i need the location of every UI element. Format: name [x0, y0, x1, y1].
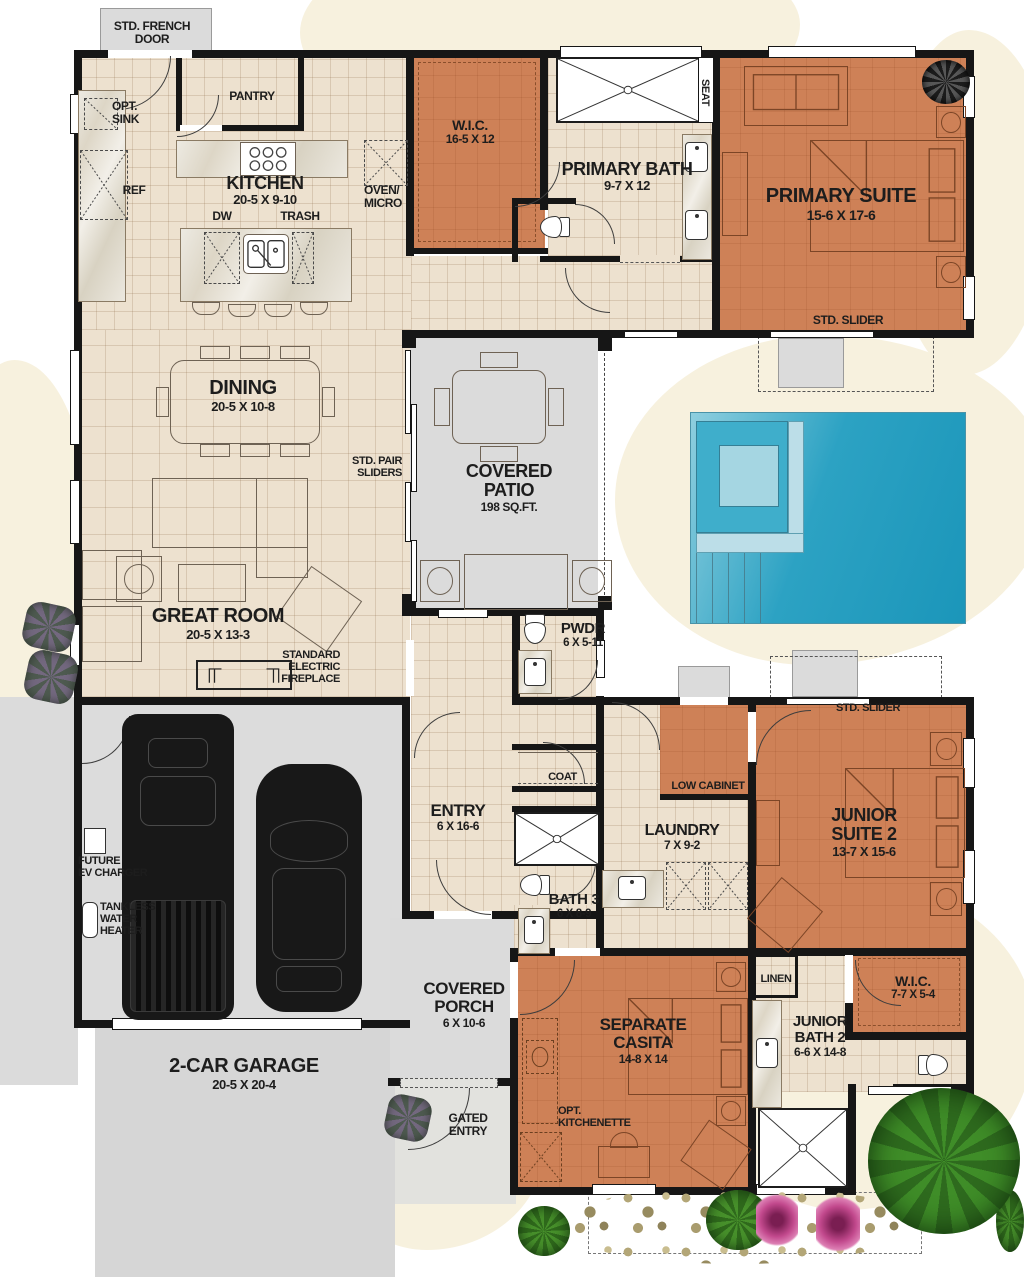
ev-charger-label: FUTURE EV CHARGER [78, 856, 170, 880]
window [438, 609, 488, 618]
slider-panel [411, 540, 417, 602]
wall-segment [660, 794, 756, 800]
wall-segment [406, 248, 548, 254]
sink [756, 1038, 778, 1068]
nightstand [716, 1096, 746, 1126]
toilet [918, 1054, 948, 1076]
linen-label: LINEN [754, 974, 798, 986]
pool [690, 412, 966, 624]
junior-door-opening [748, 712, 756, 762]
laundry-label: LAUNDRY7 X 9-2 [628, 822, 736, 852]
low-cabinet-label: LOW CABINET [663, 781, 753, 793]
ref-label: REF [112, 184, 156, 197]
wall-segment [845, 1032, 974, 1040]
wall-segment [402, 330, 416, 348]
trash-label: TRASH [272, 210, 328, 223]
primary-shower [556, 57, 700, 123]
patio-end-table [420, 560, 460, 602]
dining-chair [280, 346, 310, 359]
covered-patio-label: COVERED PATIO198 SQ.FT. [448, 462, 570, 514]
kitchen-label: KITCHEN20-5 X 9-10 [195, 174, 335, 207]
dining-label: DINING20-5 X 10-8 [170, 378, 316, 414]
casita-door-opening [510, 962, 518, 1018]
bath3-label: BATH 36 X 8-9 [536, 892, 612, 921]
slider-panel [405, 482, 411, 542]
tankless-label: TANKLESS WATER HEATER [100, 902, 172, 938]
patio-chair [434, 388, 450, 426]
primary-bath-label: PRIMARY BATH9-7 X 12 [548, 160, 706, 193]
nightstand [930, 882, 962, 916]
primary-sofa [744, 66, 848, 126]
laundry-sink [618, 876, 646, 900]
opt-sink-label: OPT. SINK [112, 100, 172, 126]
wic2-door-opening [845, 955, 853, 1003]
wic2-label: W.I.C.7-7 X 5-4 [876, 974, 950, 1002]
patio-chair [480, 352, 518, 368]
wall-segment [360, 1020, 410, 1028]
primary-suite-label: PRIMARY SUITE15-6 X 17-6 [748, 186, 934, 223]
coffee-table [178, 564, 246, 602]
junior-slider-label: STD. SLIDER [818, 703, 918, 715]
cooktop [240, 142, 296, 176]
window [70, 350, 80, 445]
entry-label: ENTRY6 X 16-6 [415, 802, 501, 833]
side-driveway [0, 697, 78, 1085]
agave-plant [922, 60, 970, 104]
large-tropical-plant [868, 1088, 1020, 1234]
dw-label: DW [204, 210, 240, 223]
nightstand [936, 256, 966, 288]
bath3-casita-opening [555, 948, 600, 956]
service-door-landing [678, 666, 730, 698]
car-roof [272, 868, 346, 960]
wall-segment [512, 786, 604, 792]
bar-stool [300, 302, 328, 315]
oven-micro-label: OVEN/ MICRO [364, 184, 416, 210]
gate-opening [400, 1078, 498, 1088]
junior-slider-outline [770, 656, 942, 698]
kitchenette-label: OPT. KITCHENETTE [558, 1106, 650, 1130]
bar-stool [228, 304, 256, 317]
wall-segment [712, 256, 720, 338]
slider-panel [411, 404, 417, 492]
desk [598, 1146, 650, 1178]
spa-bench [719, 445, 779, 507]
patio-slider [624, 331, 678, 338]
vanity-sink [685, 210, 708, 240]
pair-sliders-label: STD. PAIR SLIDERS [322, 456, 402, 480]
car-rear-window [276, 966, 342, 992]
dining-chair [240, 346, 270, 359]
dresser [756, 800, 780, 866]
wall-segment [848, 1084, 856, 1195]
wall-segment [406, 330, 974, 338]
washer [666, 862, 706, 910]
cased-opening [620, 255, 680, 263]
dresser [722, 152, 748, 236]
garage-label: 2-CAR GARAGE20-5 X 20-4 [158, 1056, 330, 1092]
pool-ledge [696, 533, 804, 553]
bush [518, 1206, 570, 1256]
primary-slider-outline [758, 336, 934, 392]
patio-post [598, 337, 612, 351]
window [768, 46, 916, 58]
sofa-chaise [256, 478, 308, 578]
fireplace-label: STANDARD ELECTRIC FIREPLACE [252, 650, 340, 686]
junior-bath2-label: JUNIOR BATH 26-6 X 14-8 [782, 1014, 858, 1059]
window [70, 480, 80, 544]
bar-stool [264, 304, 292, 317]
dining-chair [322, 387, 335, 417]
floor-plan: SEAT [0, 0, 1024, 1277]
wic1-label: W.I.C.16-5 X 12 [430, 118, 510, 146]
patio-sofa [464, 554, 568, 610]
dishwasher [204, 232, 240, 284]
patio-chair [480, 446, 518, 462]
truck-windshield [140, 776, 216, 826]
flowering-plant [756, 1194, 798, 1246]
nightstand [716, 962, 746, 992]
primary-slider [770, 331, 874, 338]
toilet [540, 216, 570, 238]
sink [524, 658, 546, 686]
oven-microwave [364, 140, 408, 186]
car-windshield [270, 820, 348, 862]
dining-chair [280, 444, 310, 457]
patio-chair [548, 388, 564, 426]
wall-segment [402, 697, 410, 919]
patio-end-table [572, 560, 612, 602]
bath3-shower [514, 812, 600, 866]
casita-label: SEPARATE CASITA14-8 X 14 [584, 1016, 702, 1066]
bar-stool [192, 302, 220, 315]
kitchenette-sink [526, 1040, 554, 1074]
dining-chair [200, 346, 230, 359]
seat-label: SEAT [698, 72, 710, 112]
junior-shower [758, 1108, 848, 1188]
wall-segment [74, 697, 410, 705]
pool-steps [696, 553, 764, 623]
gated-entry-label: GATED ENTRY [438, 1112, 498, 1138]
wall-segment [512, 198, 518, 262]
wall-segment [298, 55, 304, 131]
wic1-shelving [418, 62, 536, 242]
primary-slider-label: STD. SLIDER [798, 314, 898, 327]
dining-chair [156, 387, 169, 417]
french-door-label: STD. FRENCH DOOR [96, 20, 208, 46]
tankless-heater-box [82, 902, 98, 938]
coat-label: COAT [535, 772, 590, 784]
kitchenette-cabinet [520, 1132, 562, 1182]
dryer [708, 862, 748, 910]
wall-segment [498, 1078, 516, 1086]
kitchen-sink [243, 234, 289, 274]
pwdr-label: PWDR6 X 5-11 [545, 621, 621, 650]
service-door-opening [680, 697, 728, 705]
nightstand [936, 106, 966, 138]
car [256, 764, 362, 1012]
dining-chair [240, 444, 270, 457]
dining-chair [200, 444, 230, 457]
pantry-label: PANTRY [212, 90, 292, 103]
trash-pullout [292, 232, 314, 284]
armchair [82, 550, 142, 600]
nightstand [930, 732, 962, 766]
junior-suite2-label: JUNIOR SUITE 213-7 X 15-6 [798, 806, 930, 859]
covered-porch-label: COVERED PORCH6 X 10-6 [418, 980, 510, 1030]
flowering-plant [816, 1196, 860, 1252]
truck-hood [148, 738, 208, 768]
patio-table [452, 370, 546, 444]
toilet [524, 614, 546, 644]
entry-opening [406, 640, 414, 696]
ev-charger-box [84, 828, 106, 854]
great-room-label: GREAT ROOM20-5 X 13-3 [130, 606, 306, 642]
